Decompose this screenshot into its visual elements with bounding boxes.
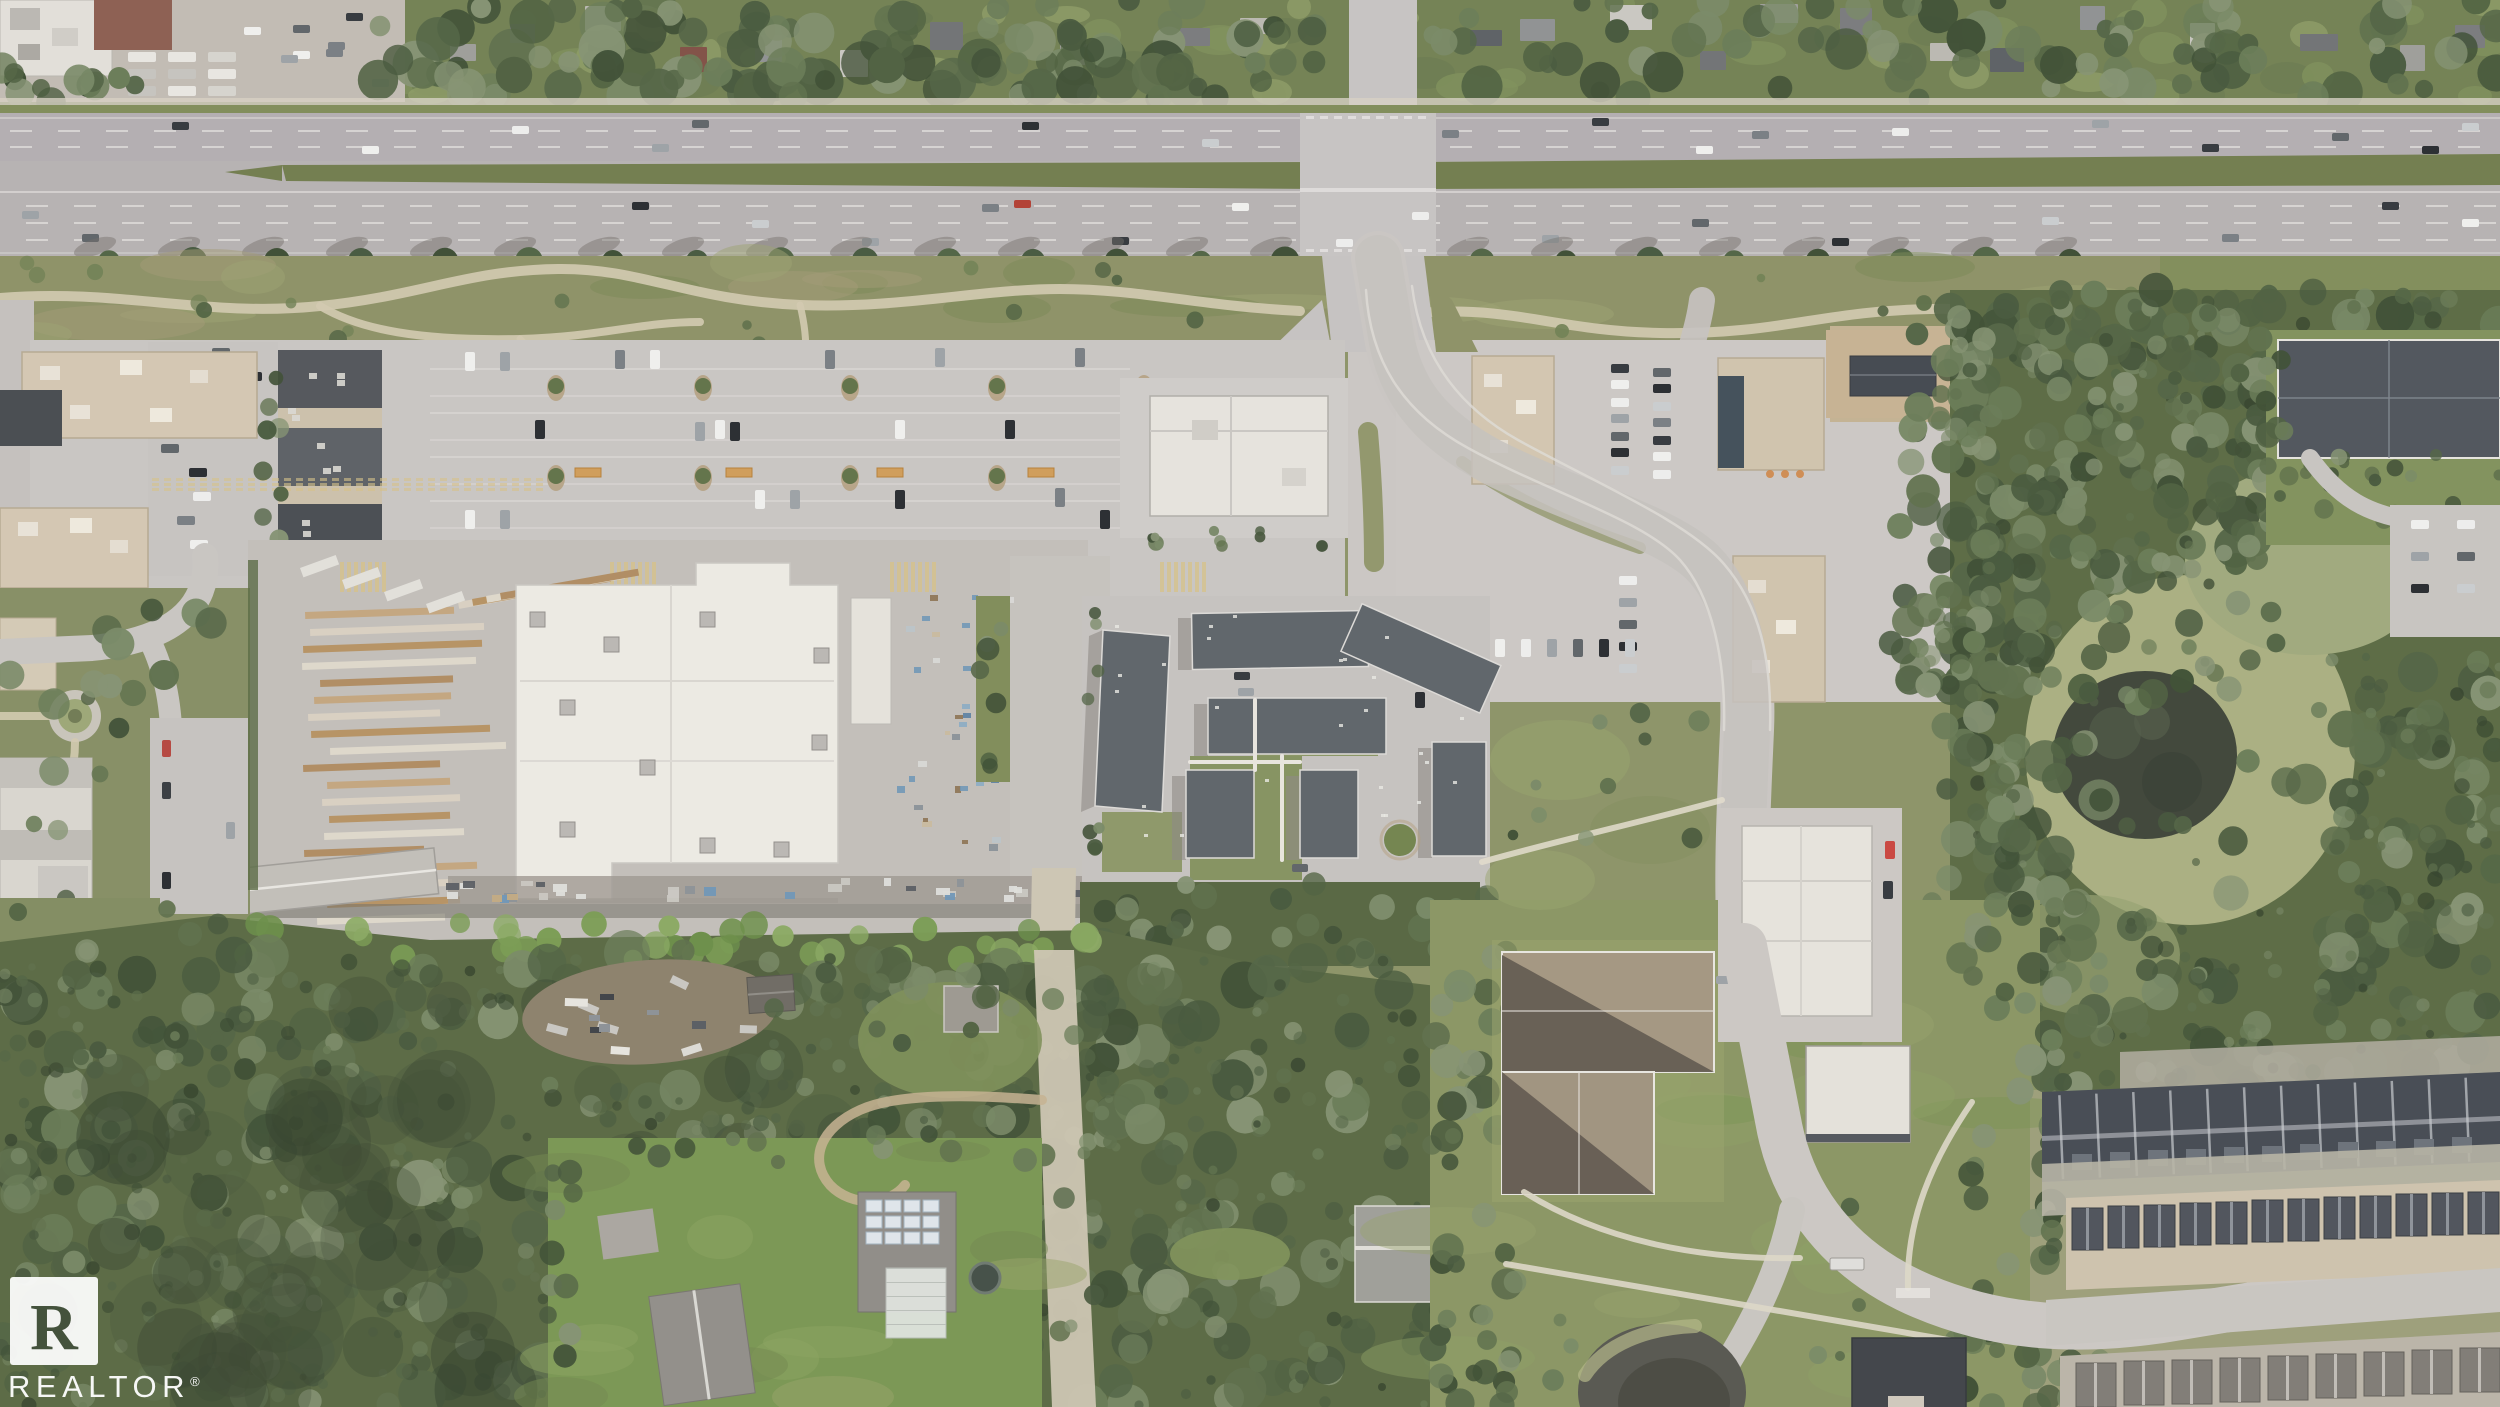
svg-text:REALTOR®: REALTOR® <box>8 1369 205 1404</box>
svg-text:R: R <box>30 1291 79 1364</box>
